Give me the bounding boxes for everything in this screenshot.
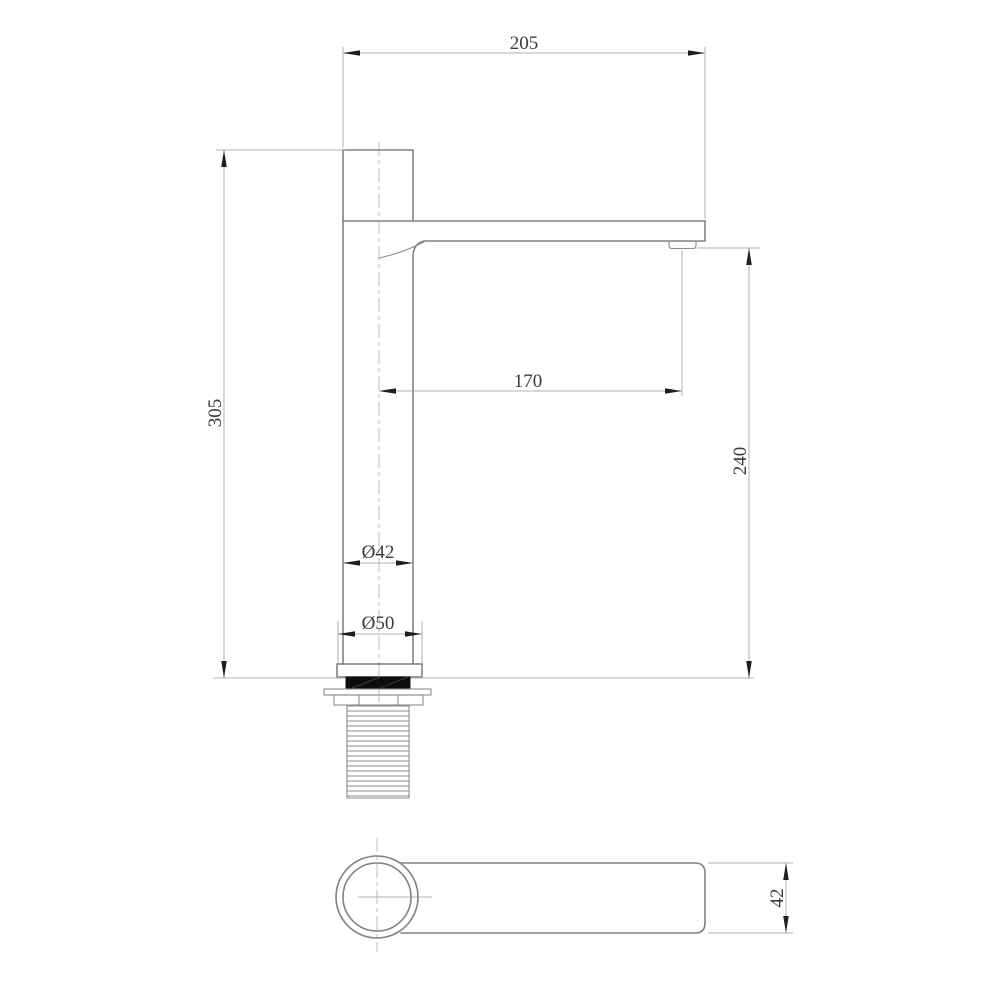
arrowhead bbox=[221, 661, 227, 678]
arrowhead bbox=[665, 388, 682, 394]
faucet-body-outline bbox=[343, 150, 705, 664]
dim-label-170: 170 bbox=[514, 371, 543, 392]
arrowhead bbox=[396, 560, 413, 566]
dim-label-42: 42 bbox=[767, 889, 788, 908]
arrowhead bbox=[746, 248, 752, 265]
gasket bbox=[346, 677, 410, 688]
top-plan-view: 42 bbox=[336, 838, 793, 952]
arrowhead bbox=[688, 50, 705, 56]
arrowhead bbox=[221, 150, 227, 167]
mounting-nut bbox=[324, 689, 431, 705]
dim-spout-reach: 170 bbox=[379, 250, 682, 396]
dim-handle-width: 42 bbox=[708, 863, 793, 933]
arrowhead bbox=[338, 631, 355, 637]
arrowhead bbox=[343, 50, 360, 56]
dim-body-diameter: Ø42 bbox=[343, 542, 413, 566]
threaded-shank bbox=[347, 705, 409, 798]
dim-label-205: 205 bbox=[510, 33, 539, 54]
arrowhead bbox=[783, 863, 789, 880]
dim-label-body-diameter: Ø42 bbox=[362, 542, 395, 563]
plan-spout-lever bbox=[401, 863, 705, 933]
arrowhead bbox=[379, 388, 396, 394]
arrowhead bbox=[746, 661, 752, 678]
dim-label-base-diameter: Ø50 bbox=[362, 613, 395, 634]
dim-overall-height: 305 bbox=[205, 150, 345, 678]
dim-base-diameter: Ø50 bbox=[338, 613, 422, 663]
dim-label-240: 240 bbox=[730, 447, 751, 476]
spout-outline bbox=[343, 221, 705, 664]
mounting-washer bbox=[324, 689, 431, 695]
front-elevation-view: 205 305 170 240 bbox=[205, 33, 760, 798]
aerator-nub bbox=[669, 241, 696, 249]
arrowhead bbox=[783, 916, 789, 933]
faucet-technical-drawing: 205 305 170 240 bbox=[0, 0, 1000, 999]
dim-label-305: 305 bbox=[205, 399, 226, 428]
arrowhead bbox=[343, 560, 360, 566]
handle-block bbox=[343, 150, 413, 221]
dim-spout-height: 240 bbox=[697, 248, 760, 678]
dim-overall-width: 205 bbox=[343, 33, 705, 219]
